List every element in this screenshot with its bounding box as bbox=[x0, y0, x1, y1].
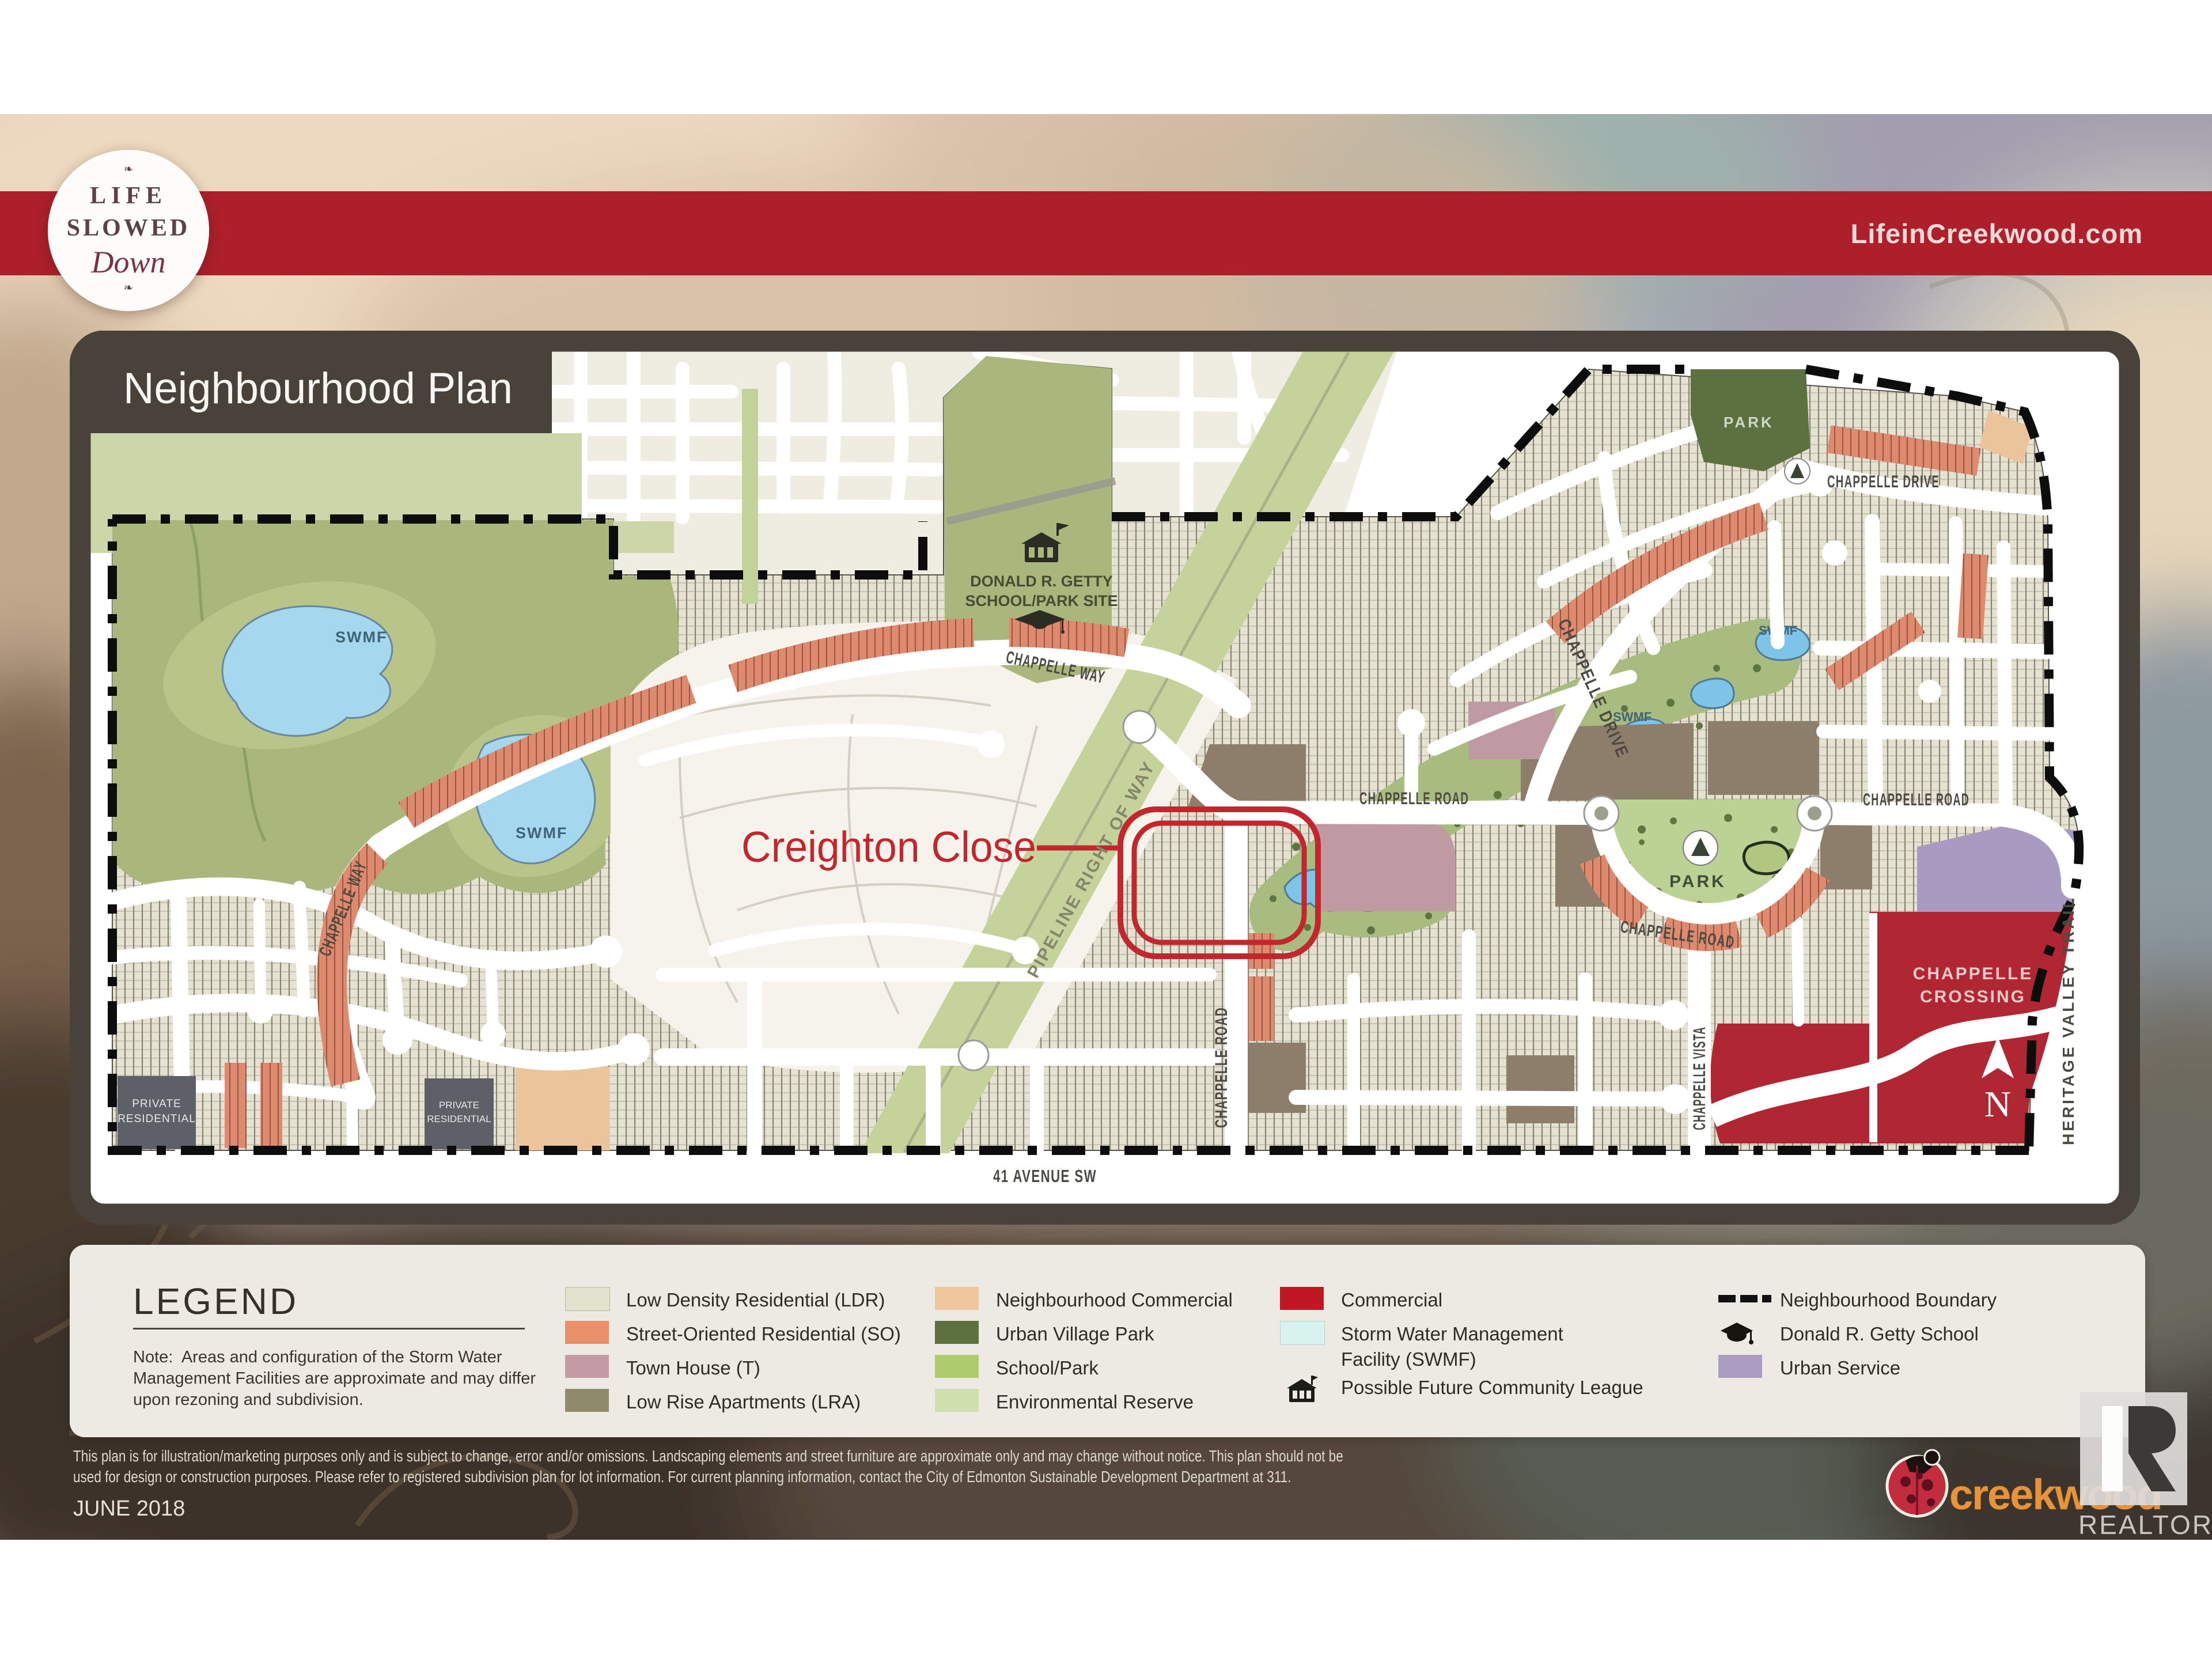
svg-text:41 AVENUE SW: 41 AVENUE SW bbox=[993, 1166, 1097, 1186]
svg-text:PRIVATE: PRIVATE bbox=[132, 1098, 181, 1110]
svg-text:SCHOOL/PARK SITE: SCHOOL/PARK SITE bbox=[965, 592, 1118, 609]
svg-text:PRIVATE: PRIVATE bbox=[439, 1100, 479, 1111]
svg-text:CHAPPELLE ROAD: CHAPPELLE ROAD bbox=[1863, 790, 1969, 809]
svg-text:PARK: PARK bbox=[1669, 872, 1726, 891]
svg-text:SWMF: SWMF bbox=[516, 824, 567, 842]
svg-text:CHAPPELLE ROAD: CHAPPELLE ROAD bbox=[1359, 789, 1469, 808]
svg-text:Creighton Close: Creighton Close bbox=[741, 823, 1036, 871]
svg-text:CROSSING: CROSSING bbox=[1920, 987, 2026, 1006]
svg-text:PARK: PARK bbox=[1724, 414, 1774, 431]
svg-text:DONALD R. GETTY: DONALD R. GETTY bbox=[970, 573, 1113, 590]
svg-text:Neighbourhood Plan: Neighbourhood Plan bbox=[123, 364, 513, 413]
svg-text:SWMF: SWMF bbox=[335, 628, 387, 646]
svg-text:N: N bbox=[1984, 1084, 2011, 1124]
svg-text:CHAPPELLE VISTA: CHAPPELLE VISTA bbox=[1690, 1027, 1709, 1130]
svg-text:CHAPPELLE: CHAPPELLE bbox=[1913, 964, 2033, 983]
svg-text:CHAPPELLE ROAD: CHAPPELLE ROAD bbox=[1212, 1007, 1231, 1128]
svg-text:RESIDENTIAL: RESIDENTIAL bbox=[427, 1113, 491, 1124]
svg-text:CHAPPELLE DRIVE: CHAPPELLE DRIVE bbox=[1827, 472, 1940, 491]
svg-text:HERITAGE VALLEY TRAIL: HERITAGE VALLEY TRAIL bbox=[2059, 896, 2077, 1145]
svg-text:RESIDENTIAL: RESIDENTIAL bbox=[118, 1113, 196, 1125]
